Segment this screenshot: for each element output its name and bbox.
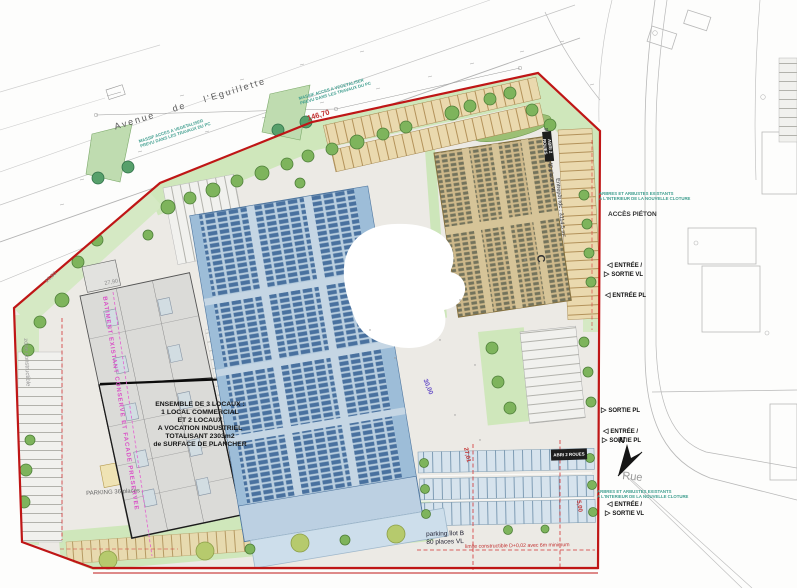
acces-pieton-label: ACCÈS PIÉTON xyxy=(608,211,657,218)
exit-triangle-icon: ▷ xyxy=(601,407,606,414)
exit-triangle-icon: ▷ xyxy=(605,510,610,517)
parking-b-label: parking îlot B 80 places VL xyxy=(426,530,464,547)
abri-velo-box-bottom: ABRI 2 ROUES xyxy=(551,448,587,460)
access-entree-pl: ◁ ENTRÉE PL xyxy=(605,292,646,299)
access-sortie-vl-2: ▷ SORTIE VL xyxy=(605,510,644,517)
entry-triangle-icon: ◁ xyxy=(603,428,608,435)
rue-street-label: Rue xyxy=(622,470,643,484)
entry-triangle-icon: ◁ xyxy=(607,501,612,508)
entry-triangle-icon: ◁ xyxy=(605,292,610,299)
building-c-label: C xyxy=(534,254,547,263)
exit-triangle-icon: ▷ xyxy=(604,271,609,278)
entry-triangle-icon: ◁ xyxy=(607,262,612,269)
exit-triangle-icon: ▷ xyxy=(602,437,607,444)
access-sortie-pl: ▷ SORTIE PL xyxy=(601,407,640,414)
access-sortie-vl: ▷ SORTIE VL xyxy=(604,271,643,278)
arbres-note-bottom: ARBRES ET ARBUSTES EXISTANTS A L'INTERIE… xyxy=(597,489,688,500)
parking-mid-right xyxy=(520,326,585,423)
access-entree-2: ◁ ENTRÉE / xyxy=(603,428,638,435)
site-plan-drawing xyxy=(0,0,797,588)
access-entree-vl: ◁ ENTRÉE / xyxy=(607,262,642,269)
building-a-annotation: ENSEMBLE DE 3 LOCAUX : 1 LOCAL COMMERCIA… xyxy=(109,401,291,449)
arbres-note-top: ARBRES ET ARBUSTES EXISTANTS A L'INTERIE… xyxy=(599,191,690,202)
north-label: N xyxy=(619,436,625,445)
access-entree-3: ◁ ENTRÉE / xyxy=(607,501,642,508)
site-plan: Avenue de l'Eguillette Rue MASSIF ACCES … xyxy=(0,0,797,588)
